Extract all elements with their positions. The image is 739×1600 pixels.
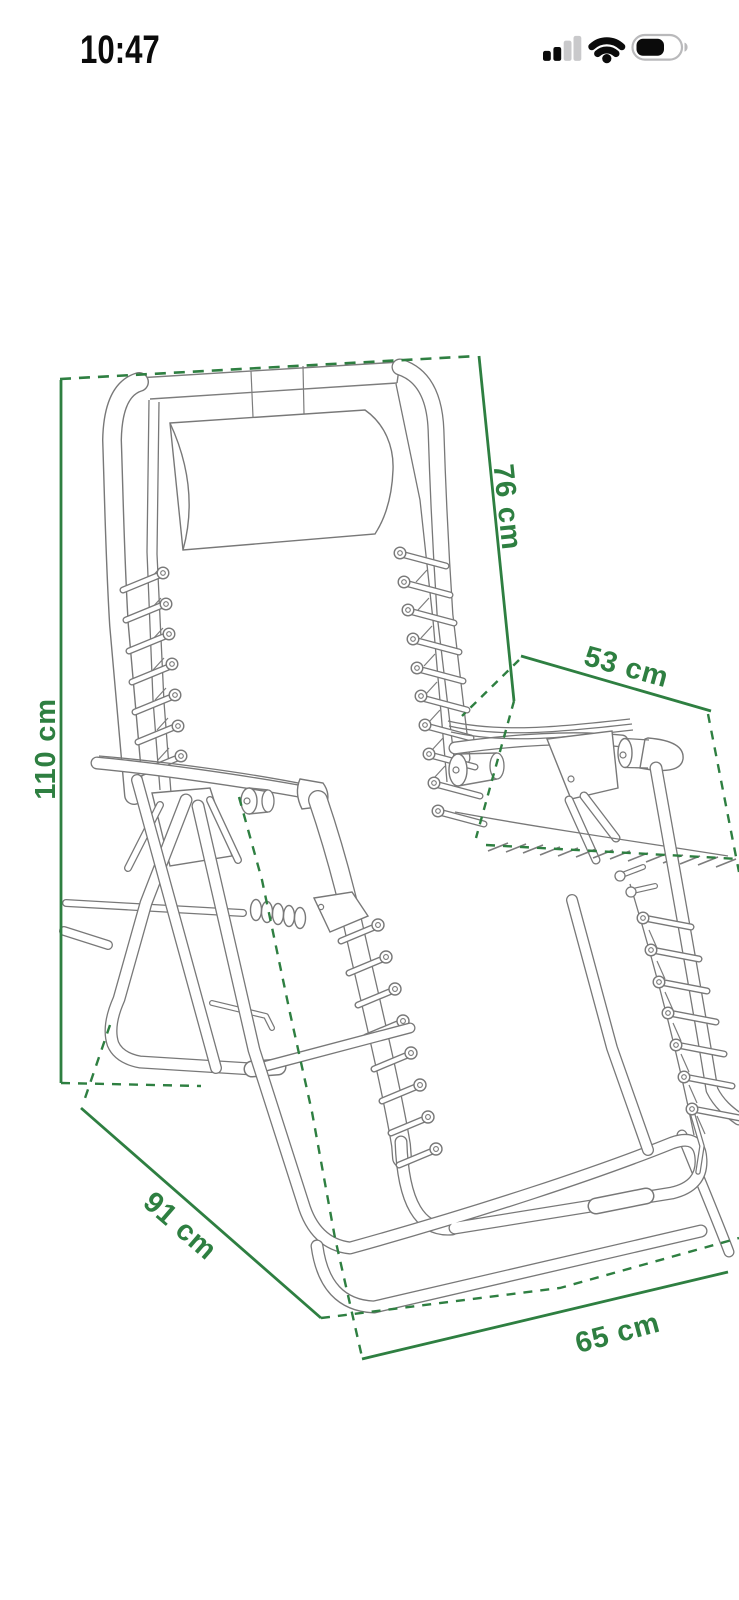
svg-text:110 cm: 110 cm <box>30 698 62 800</box>
svg-text:10:47: 10:47 <box>80 27 160 72</box>
